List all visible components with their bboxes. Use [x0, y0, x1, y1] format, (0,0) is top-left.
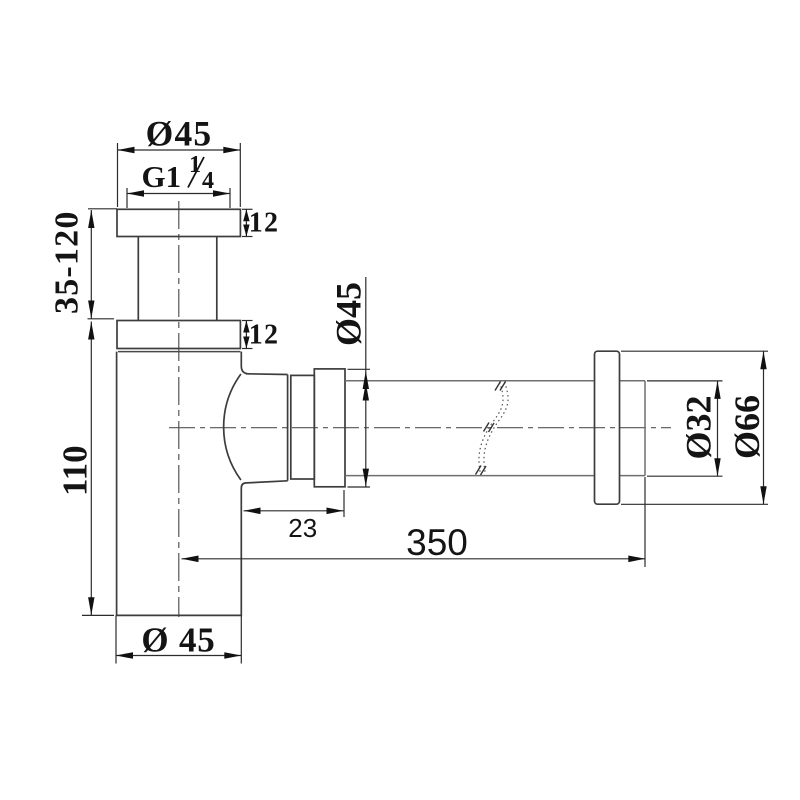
svg-text:12: 12	[249, 207, 279, 238]
svg-text:23: 23	[288, 513, 317, 543]
svg-text:G1: G1	[142, 159, 182, 194]
svg-text:Ø32: Ø32	[679, 395, 719, 459]
svg-text:350: 350	[406, 522, 468, 563]
svg-text:Ø45: Ø45	[329, 282, 369, 346]
svg-text:Ø45: Ø45	[146, 114, 213, 154]
svg-text:35-120: 35-120	[49, 210, 86, 314]
svg-text:12: 12	[249, 320, 279, 351]
svg-text:Ø66: Ø66	[727, 395, 767, 459]
svg-text:110: 110	[56, 445, 95, 496]
svg-text:4: 4	[202, 168, 214, 194]
svg-text:Ø 45: Ø 45	[141, 621, 215, 660]
